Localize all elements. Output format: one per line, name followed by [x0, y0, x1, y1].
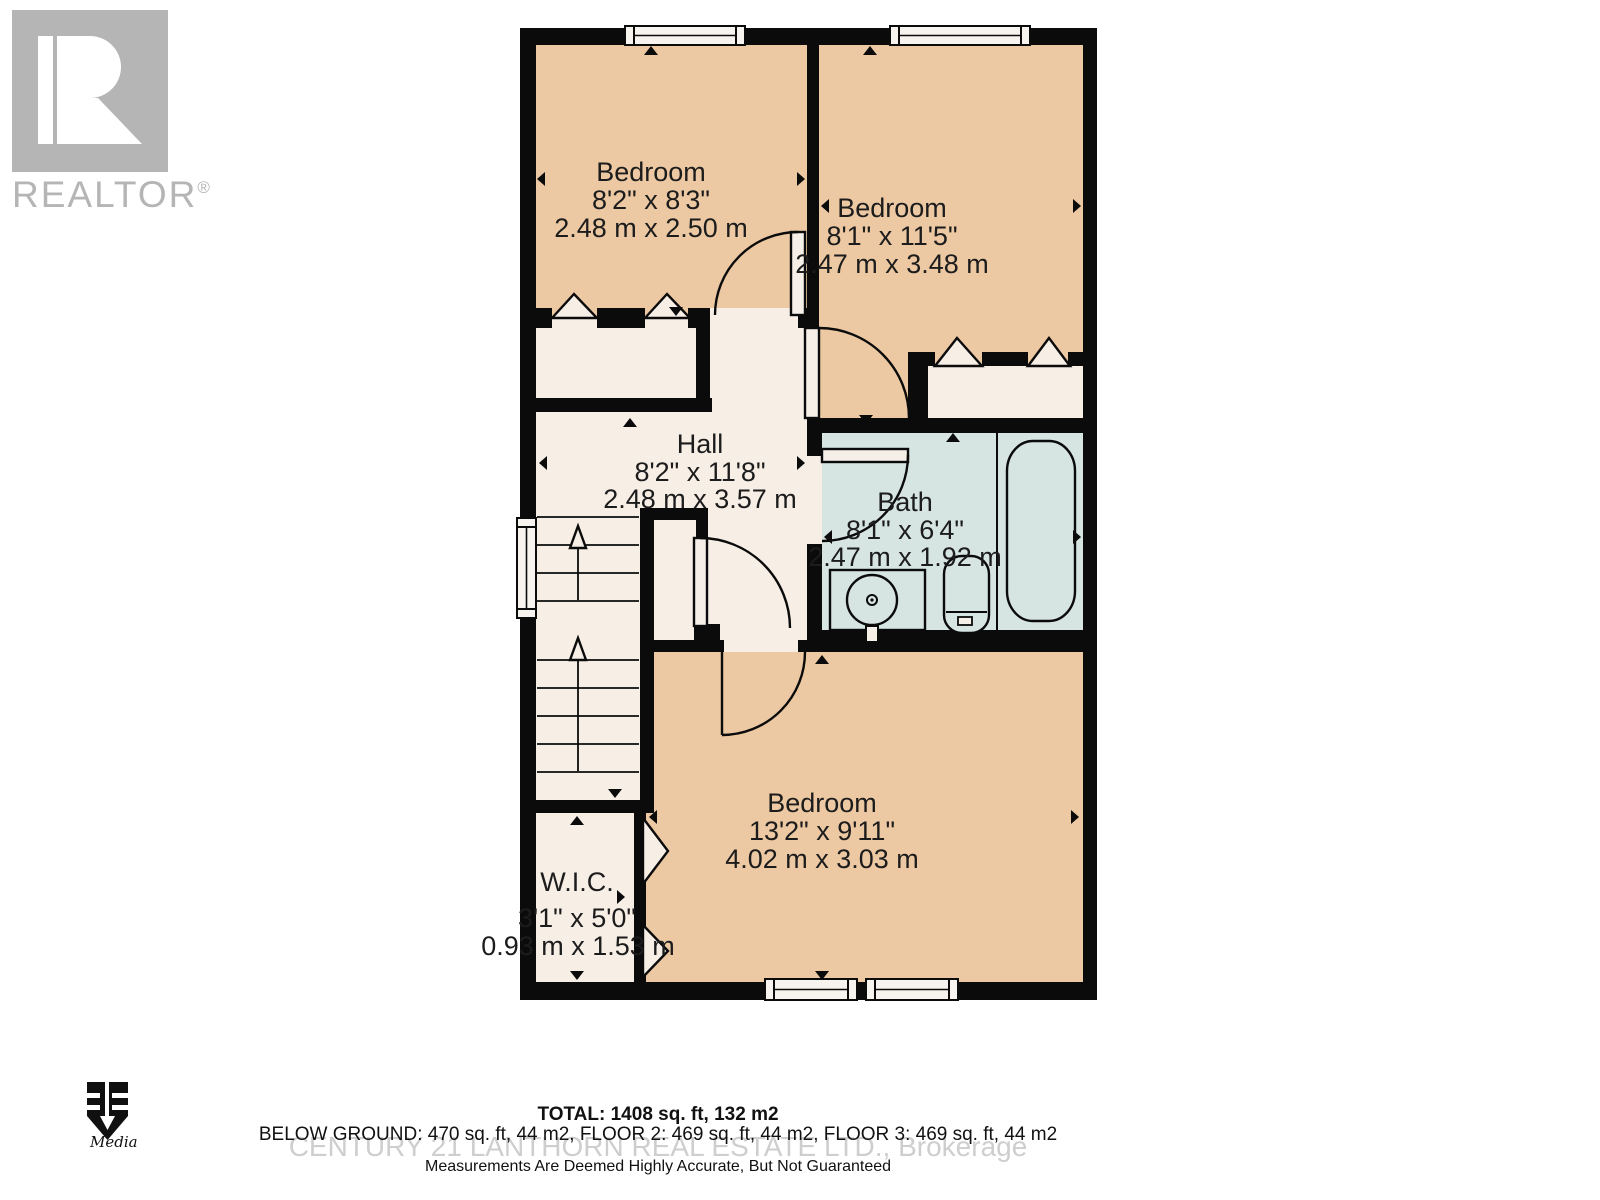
realtor-logo: REALTOR® [12, 10, 212, 215]
svg-text:2.47 m x 1.92 m: 2.47 m x 1.92 m [808, 542, 1002, 572]
svg-text:Bedroom: Bedroom [596, 157, 706, 187]
svg-text:8'2" x 8'3": 8'2" x 8'3" [592, 185, 710, 215]
bathtub-icon [1007, 441, 1075, 621]
svg-text:8'1" x 6'4": 8'1" x 6'4" [846, 515, 964, 545]
footer-floor-areas: BELOW GROUND: 470 sq. ft, 44 m2, FLOOR 2… [259, 1124, 1057, 1146]
svg-text:W.I.C.: W.I.C. [540, 867, 614, 897]
be-media-logo: Media [87, 1082, 138, 1151]
svg-text:Bath: Bath [877, 487, 933, 517]
svg-text:4.02 m x 3.03 m: 4.02 m x 3.03 m [725, 844, 919, 874]
be-shield-icon [87, 1082, 128, 1140]
window-top-right [890, 26, 1030, 45]
floorplan-page: CENTURY 21 LANTHORN REAL ESTATE LTD., Br… [0, 0, 1600, 1200]
floorplan: Bedroom 8'2" x 8'3" 2.48 m x 2.50 m Bedr… [481, 26, 1097, 1000]
svg-text:Bedroom: Bedroom [767, 788, 877, 818]
svg-text:Hall: Hall [677, 429, 724, 459]
svg-text:8'1" x 11'5": 8'1" x 11'5" [826, 221, 957, 251]
window-top-left [625, 26, 745, 45]
svg-text:2.48 m x 3.57 m: 2.48 m x 3.57 m [603, 484, 797, 514]
realtor-wordmark: REALTOR® [12, 174, 212, 215]
closet-topright-interior [928, 363, 1083, 418]
svg-text:13'2" x 9'11": 13'2" x 9'11" [749, 816, 895, 846]
svg-text:8'2" x 11'8": 8'2" x 11'8" [634, 457, 765, 487]
floorplan-svg: REALTOR® [0, 0, 1600, 1200]
footer-total: TOTAL: 1408 sq. ft, 132 m2 [537, 1104, 778, 1126]
svg-text:2.47 m x 3.48 m: 2.47 m x 3.48 m [795, 249, 989, 279]
window-left-stairs [517, 518, 536, 618]
footer-disclaimer: Measurements Are Deemed Highly Accurate,… [425, 1158, 891, 1176]
svg-text:0.93 m x 1.53 m: 0.93 m x 1.53 m [481, 931, 675, 961]
svg-text:3'1" x 5'0": 3'1" x 5'0" [518, 903, 636, 933]
svg-text:Bedroom: Bedroom [837, 193, 947, 223]
svg-text:2.48 m x 2.50 m: 2.48 m x 2.50 m [554, 213, 748, 243]
be-media-sub: Media [89, 1133, 138, 1151]
